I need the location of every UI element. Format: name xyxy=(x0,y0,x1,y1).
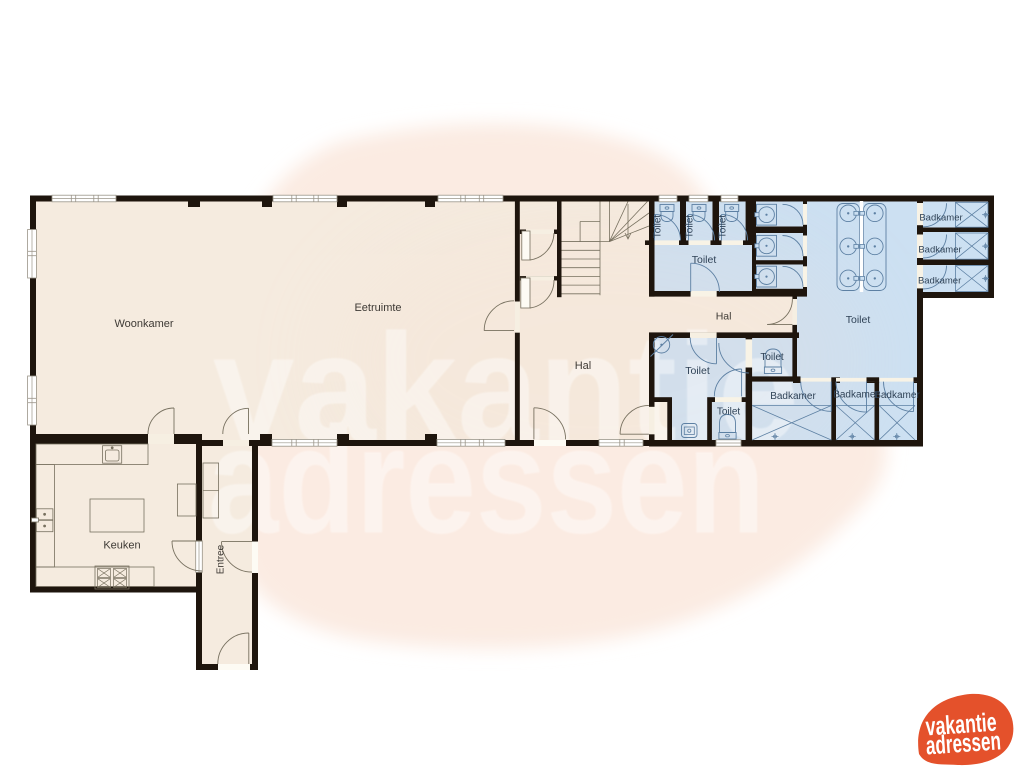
svg-text:Toilet: Toilet xyxy=(685,215,696,239)
svg-text:Toilet: Toilet xyxy=(846,314,871,326)
svg-text:Eetruimte: Eetruimte xyxy=(354,302,401,314)
svg-text:Badkamer: Badkamer xyxy=(919,213,962,224)
svg-text:Toilet: Toilet xyxy=(653,215,664,239)
svg-text:Toilet: Toilet xyxy=(685,365,710,377)
svg-text:Entree: Entree xyxy=(216,544,227,574)
svg-text:Toilet: Toilet xyxy=(717,407,741,418)
svg-text:adressen: adressen xyxy=(208,396,765,566)
svg-text:adressen: adressen xyxy=(925,725,1002,760)
svg-text:Badkamer: Badkamer xyxy=(874,390,920,401)
svg-text:Keuken: Keuken xyxy=(103,540,140,552)
svg-text:Hal: Hal xyxy=(575,360,592,372)
svg-text:Toilet: Toilet xyxy=(760,352,784,363)
svg-text:Toilet: Toilet xyxy=(718,215,729,239)
svg-text:Badkamer: Badkamer xyxy=(833,390,879,401)
svg-text:Badkamer: Badkamer xyxy=(770,391,816,402)
svg-text:Woonkamer: Woonkamer xyxy=(114,318,173,330)
svg-text:Badkamer: Badkamer xyxy=(918,276,961,287)
svg-text:Toilet: Toilet xyxy=(692,254,717,266)
svg-text:Hal: Hal xyxy=(716,311,732,323)
svg-text:Badkamer: Badkamer xyxy=(918,245,961,256)
